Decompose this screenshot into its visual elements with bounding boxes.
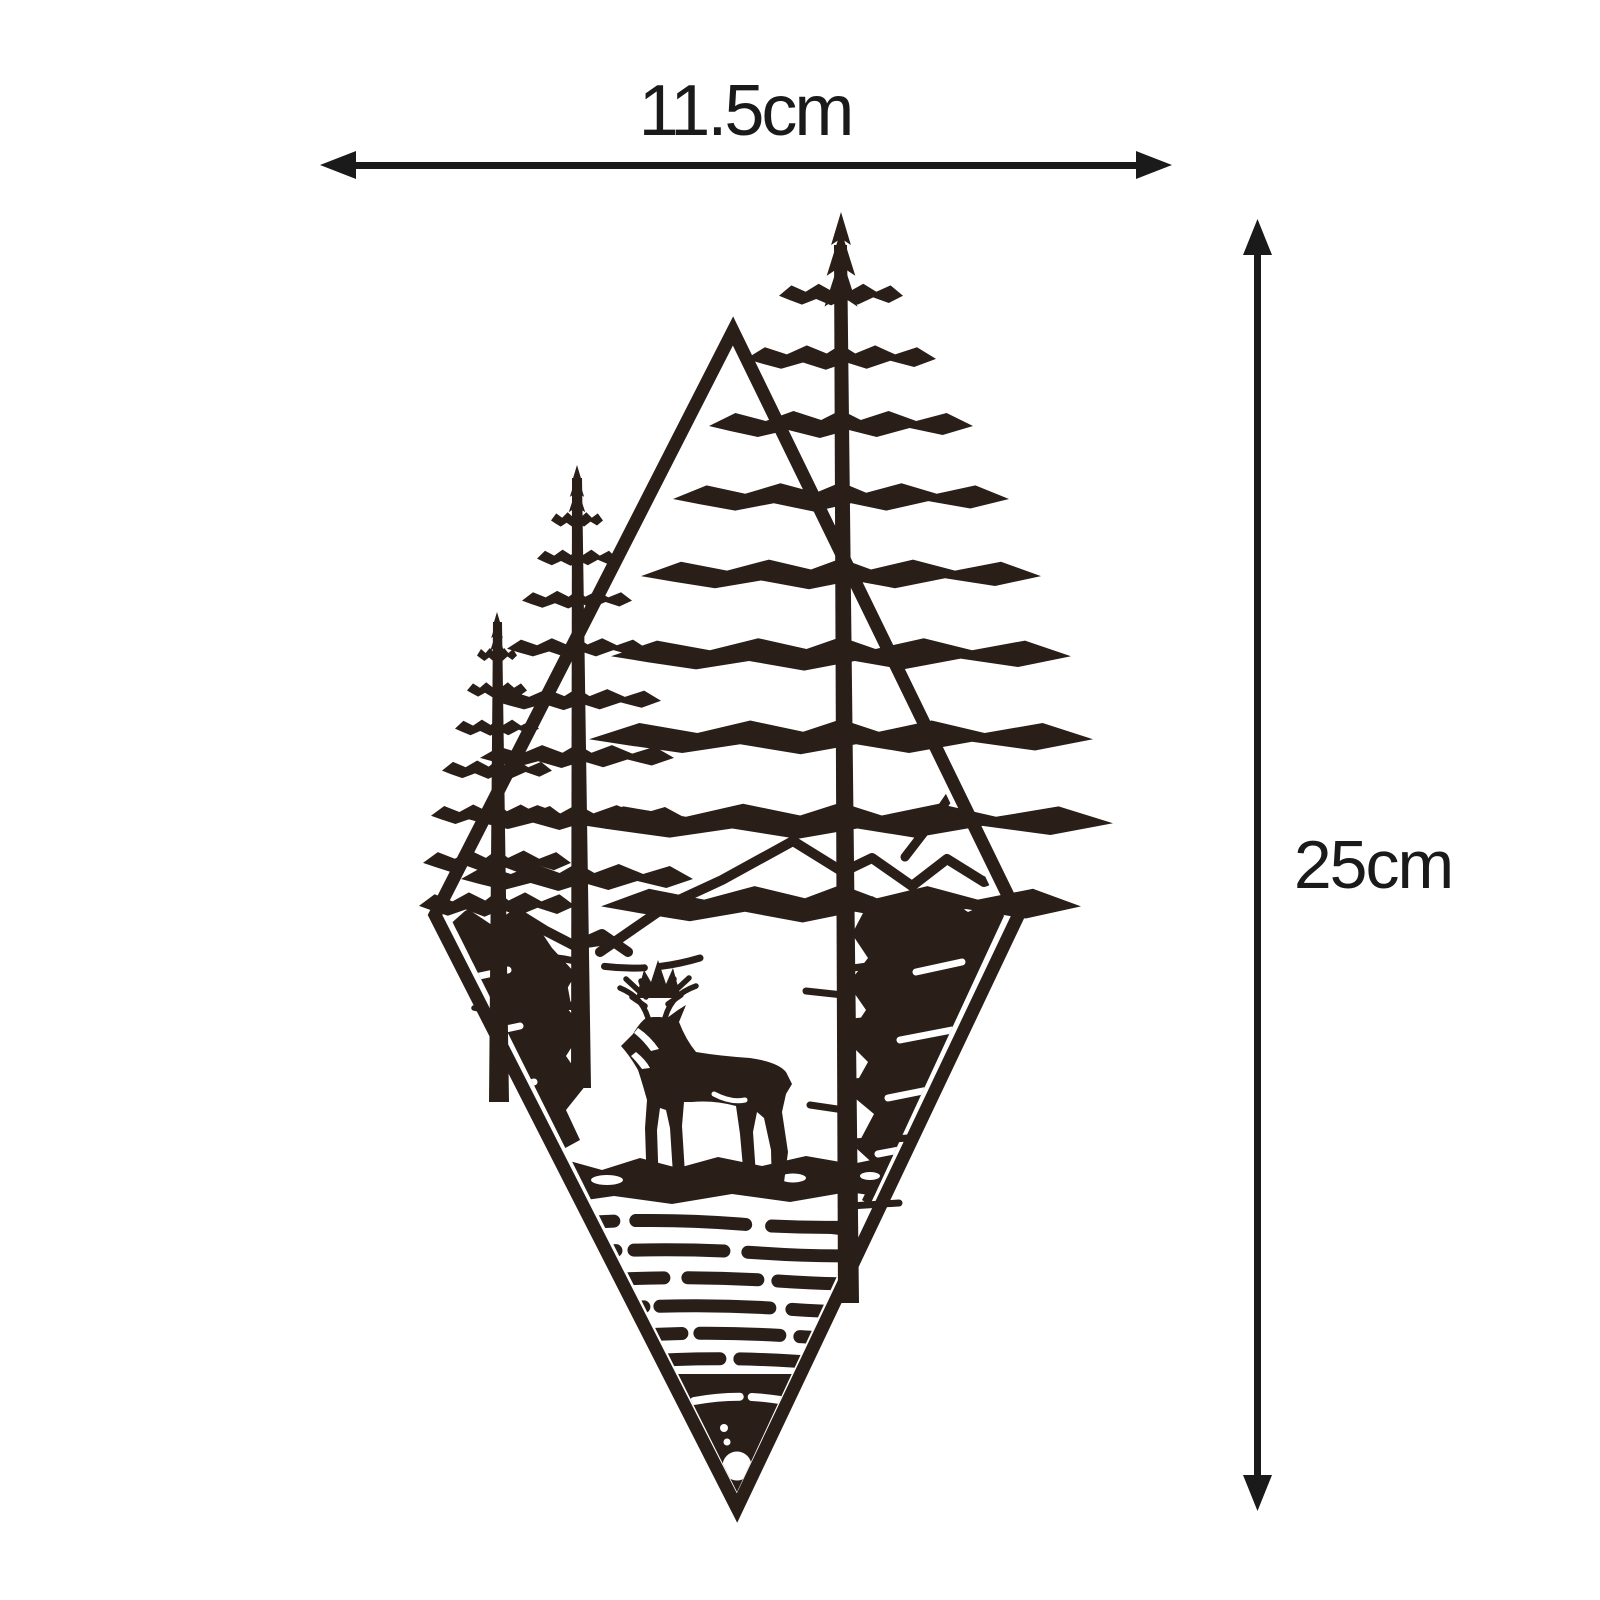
tree-trunk bbox=[571, 478, 591, 1088]
width-dimension-label: 11.5cm bbox=[639, 71, 852, 151]
vertical-dimension: 25cm bbox=[1243, 219, 1452, 1511]
left-hillside bbox=[446, 914, 586, 1152]
width-arrow-icon bbox=[320, 151, 1172, 179]
deer-stag-icon bbox=[620, 978, 792, 1190]
dimension-diagram-svg: 11.5cm 25cm bbox=[0, 0, 1600, 1600]
horizontal-dimension: 11.5cm bbox=[320, 71, 1172, 179]
rivet-dot bbox=[720, 1424, 728, 1432]
height-dimension-label: 25cm bbox=[1294, 827, 1452, 903]
metal-wall-art bbox=[419, 212, 1113, 1508]
product-dimension-image: 11.5cm 25cm bbox=[0, 0, 1600, 1600]
rivet-dot bbox=[724, 1439, 731, 1446]
height-arrow-icon bbox=[1243, 219, 1272, 1511]
